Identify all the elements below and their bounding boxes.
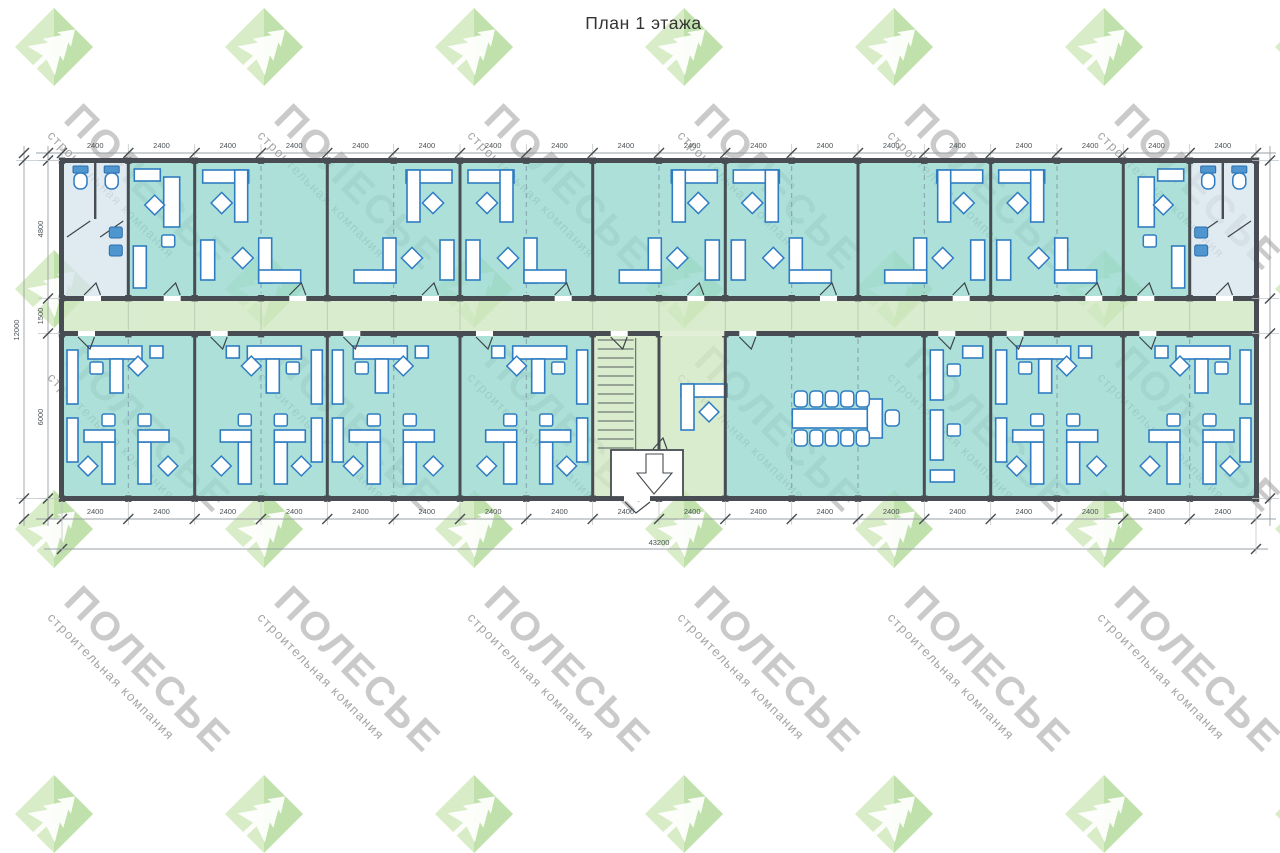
svg-text:2400: 2400: [286, 141, 303, 150]
svg-text:2400: 2400: [1148, 141, 1165, 150]
svg-text:2400: 2400: [153, 141, 170, 150]
entrance-vestibule: [611, 438, 683, 513]
svg-text:2400: 2400: [684, 507, 701, 516]
svg-text:2400: 2400: [219, 141, 236, 150]
svg-text:1500: 1500: [36, 308, 45, 325]
page-title: План 1 этажа: [585, 13, 701, 34]
svg-text:43200: 43200: [649, 538, 670, 547]
svg-text:2400: 2400: [883, 507, 900, 516]
svg-text:2400: 2400: [949, 507, 966, 516]
svg-text:2400: 2400: [750, 141, 767, 150]
floor-plan-drawing: 2400240024002400240024002400240024002400…: [0, 0, 1280, 853]
svg-text:2400: 2400: [1214, 141, 1231, 150]
svg-text:2400: 2400: [219, 507, 236, 516]
svg-text:2400: 2400: [551, 507, 568, 516]
svg-text:2400: 2400: [617, 507, 634, 516]
svg-text:2400: 2400: [418, 507, 435, 516]
floor-plan: 2400240024002400240024002400240024002400…: [0, 0, 1280, 853]
svg-text:2400: 2400: [1015, 507, 1032, 516]
svg-text:2400: 2400: [485, 507, 502, 516]
svg-text:2400: 2400: [418, 141, 435, 150]
svg-text:4800: 4800: [36, 221, 45, 238]
svg-text:2400: 2400: [1015, 141, 1032, 150]
svg-text:2400: 2400: [87, 507, 104, 516]
svg-text:2400: 2400: [883, 141, 900, 150]
svg-text:2400: 2400: [1148, 507, 1165, 516]
svg-text:2400: 2400: [286, 507, 303, 516]
canvas: ПОЛЕСЬЕ строительная компания ПОЛЕСЬЕ ст…: [0, 0, 1280, 853]
svg-text:6000: 6000: [36, 409, 45, 426]
svg-text:12000: 12000: [12, 320, 21, 341]
svg-text:2400: 2400: [617, 141, 634, 150]
svg-text:2400: 2400: [750, 507, 767, 516]
svg-text:2400: 2400: [1082, 507, 1099, 516]
svg-text:2400: 2400: [87, 141, 104, 150]
svg-text:2400: 2400: [816, 141, 833, 150]
svg-text:2400: 2400: [949, 141, 966, 150]
svg-text:2400: 2400: [485, 141, 502, 150]
svg-text:2400: 2400: [551, 141, 568, 150]
svg-text:2400: 2400: [153, 507, 170, 516]
svg-text:2400: 2400: [684, 141, 701, 150]
svg-text:2400: 2400: [1082, 141, 1099, 150]
svg-text:2400: 2400: [352, 507, 369, 516]
svg-text:2400: 2400: [352, 141, 369, 150]
svg-text:2400: 2400: [1214, 507, 1231, 516]
svg-text:2400: 2400: [816, 507, 833, 516]
